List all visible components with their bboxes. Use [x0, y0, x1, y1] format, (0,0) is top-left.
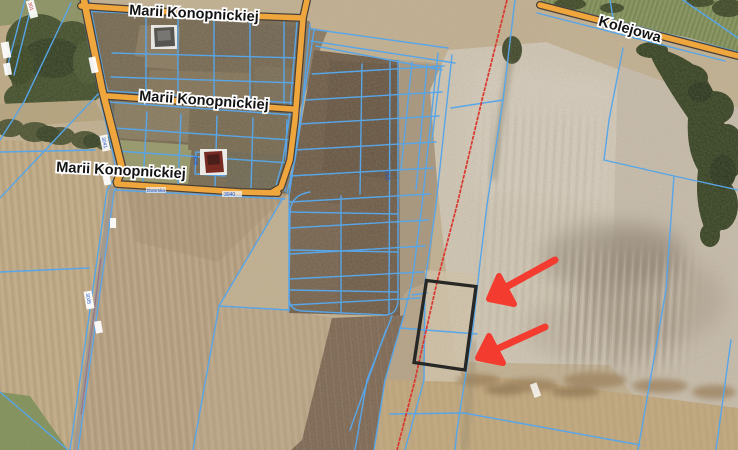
svg-text:Dworska: Dworska	[147, 188, 165, 193]
svg-text:310: 310	[383, 170, 390, 181]
svg-text:308: 308	[191, 155, 198, 166]
svg-text:3040: 3040	[224, 192, 235, 198]
